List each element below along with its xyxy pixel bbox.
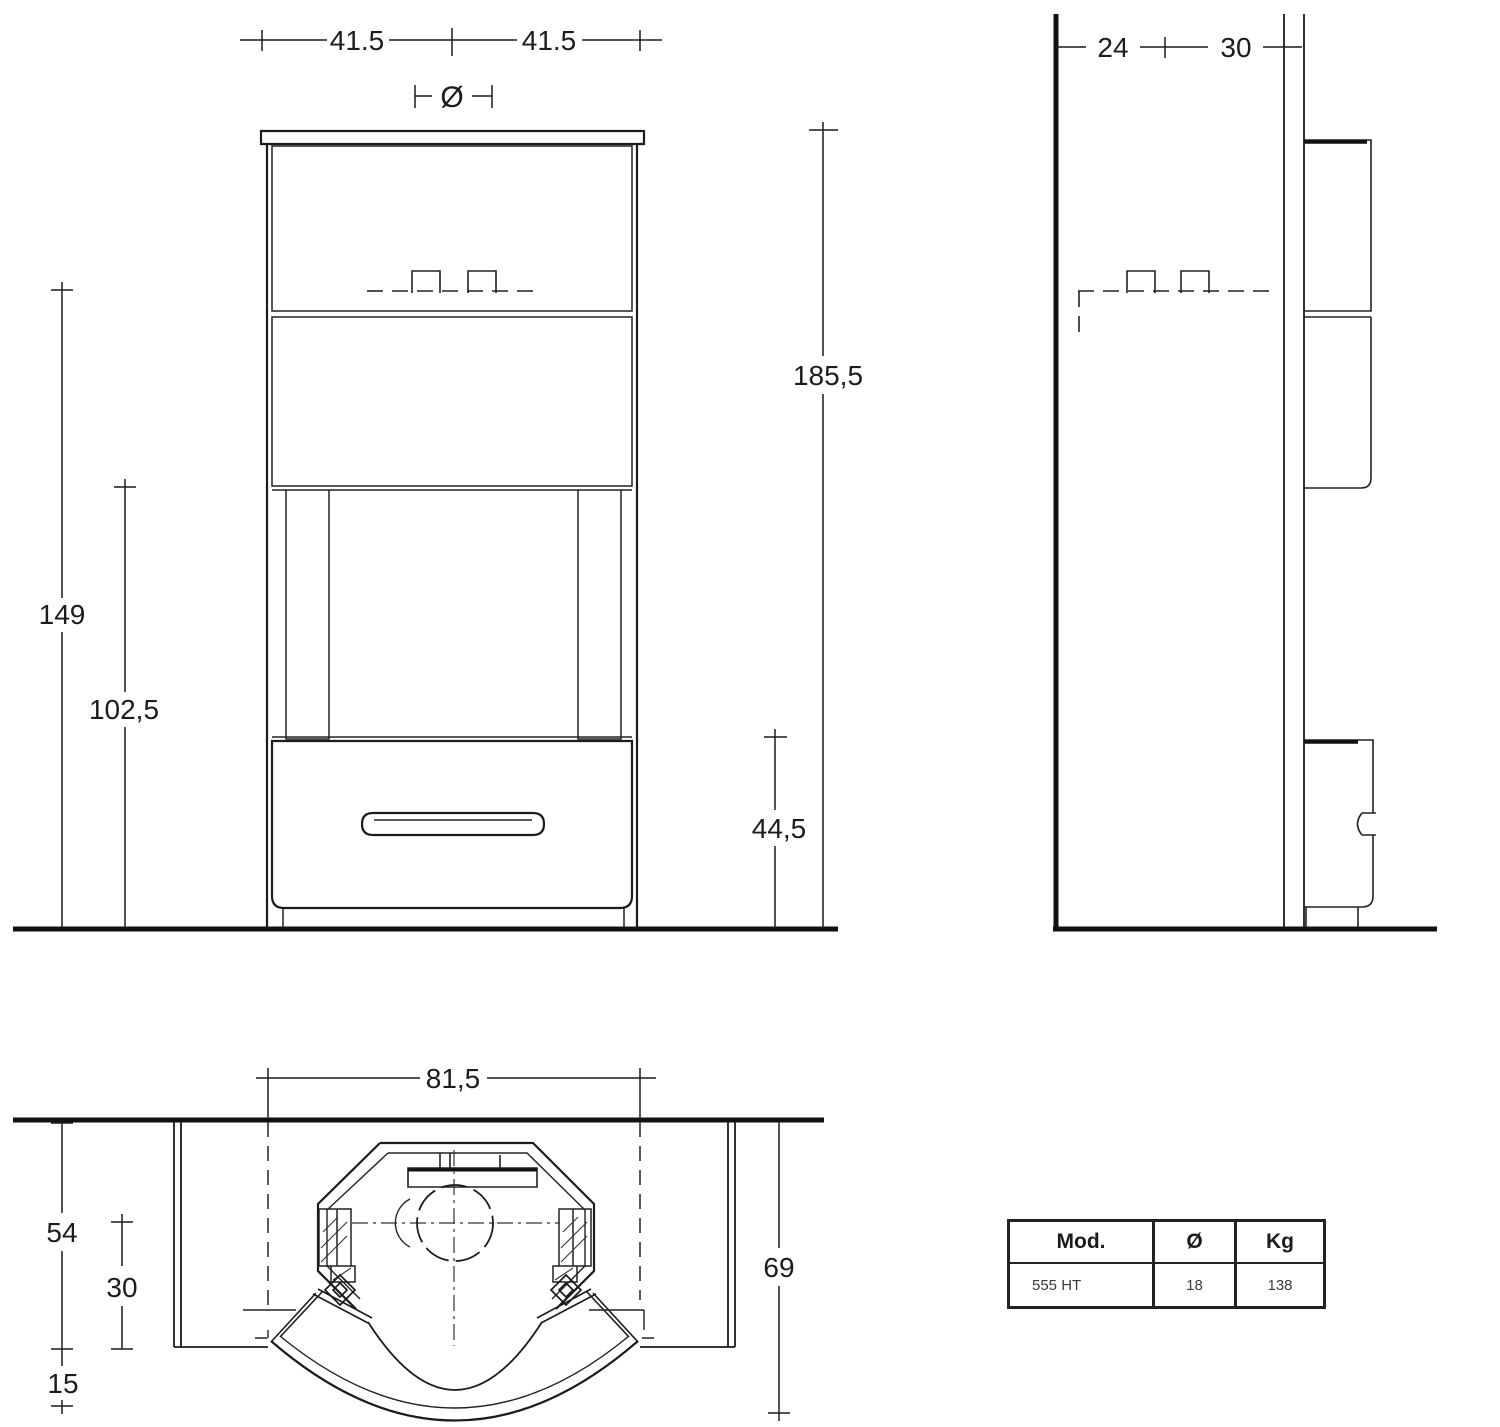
plan-dim-depth-total: 69 [763,1252,794,1283]
front-dim-height-total: 185,5 [793,360,863,391]
plan-door-arc-inner [368,1322,542,1390]
front-view: 41.5 41.5 Ø 149 102,5 185,5 44,5 [13,25,863,929]
table-cell-diameter: 18 [1155,1264,1237,1306]
table-header-diameter: Ø [1155,1222,1237,1264]
side-register-hidden-line [1078,291,1270,333]
side-body-outline [1304,140,1373,927]
front-dim-height-base: 44,5 [752,813,807,844]
front-dim-flue-symbol: Ø [440,81,463,114]
plan-dim-flue-center-depth: 30 [106,1272,137,1303]
plan-dim-opening-width: 81,5 [426,1063,481,1094]
side-dim-depth-front: 30 [1220,32,1251,63]
table-cell-model: 555 HT [1010,1264,1155,1306]
front-dim-height-register: 149 [39,599,86,630]
side-back-panel-lines [1284,14,1304,928]
front-dim-height-opening: 102,5 [89,694,159,725]
front-dim-width-left: 41.5 [330,25,385,56]
front-register-staples [412,271,496,293]
table-header-model: Mod. [1010,1222,1155,1264]
front-dimension-lines [51,28,838,929]
table-cell-weight: 138 [1237,1264,1323,1306]
side-handle-notch [1358,813,1377,835]
side-dim-depth-back: 24 [1097,32,1128,63]
plan-floor-edge-marks [243,1310,654,1338]
plan-dim-door-depth: 15 [47,1368,78,1399]
plan-dim-depth-body: 54 [46,1217,77,1248]
plan-baffles [319,1209,591,1282]
side-dimension-lines [1056,37,1302,58]
technical-drawing: 41.5 41.5 Ø 149 102,5 185,5 44,5 24 30 [0,0,1500,1427]
side-register-staples [1127,271,1209,293]
side-thick-edges [1304,142,1367,742]
spec-table: Mod. Ø Kg 555 HT 18 138 [1007,1219,1326,1309]
table-header-weight: Kg [1237,1222,1323,1264]
plan-view: 81,5 54 30 15 69 [13,1063,824,1421]
front-dim-width-right: 41.5 [522,25,577,56]
side-view: 24 30 [1053,14,1437,929]
plan-octagon-inner [327,1153,585,1299]
front-body-outline [261,131,644,928]
plan-door-arc-middle [280,1336,629,1408]
blueprint-canvas: 41.5 41.5 Ø 149 102,5 185,5 44,5 24 30 [0,0,1500,1427]
front-body-internal [272,146,632,928]
plan-center-lines [352,1150,560,1346]
plan-door-hinges [325,1275,581,1305]
